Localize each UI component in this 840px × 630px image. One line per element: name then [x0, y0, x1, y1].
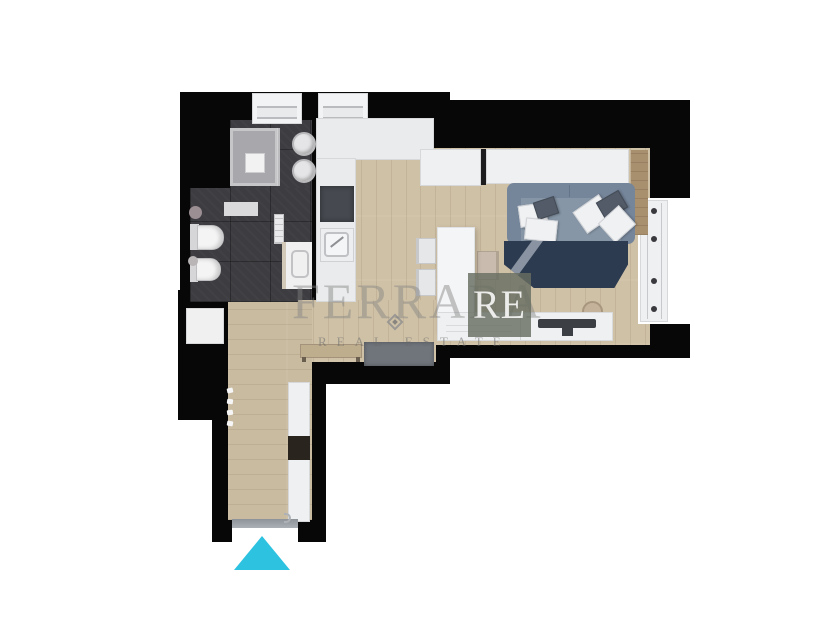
- shower-drain-plate: [245, 153, 265, 173]
- coat-hook: [227, 399, 234, 405]
- washbasin-round: [292, 132, 316, 156]
- towel-radiator: [274, 214, 284, 244]
- coat-hook: [227, 421, 234, 427]
- window-handle-dot: [651, 306, 657, 312]
- sink-basin: [324, 232, 349, 257]
- shower-glass-panel: [277, 128, 280, 186]
- entry-bench-leg: [356, 357, 360, 362]
- bath-mat: [224, 202, 258, 216]
- sofa-pillow: [524, 217, 558, 242]
- tv-stand-mount: [562, 328, 573, 336]
- sofa-back-seam: [569, 185, 570, 197]
- kitchen-counter-top: [316, 118, 434, 160]
- bathroom-accessory: [189, 206, 202, 219]
- window-glazing: [257, 106, 297, 119]
- bathroom-accessory: [188, 256, 198, 266]
- watermark-brand-badge: RE: [468, 273, 531, 337]
- hall-wardrobe-recess: [288, 436, 310, 460]
- wardrobe-unit-left: [420, 149, 481, 186]
- window-north-bathroom: [252, 93, 302, 124]
- window-handle-dot: [651, 278, 657, 284]
- cooktop: [320, 186, 354, 222]
- sofa: [507, 183, 635, 244]
- entry-bench-leg: [302, 357, 306, 362]
- coat-hook: [227, 410, 234, 416]
- hallway-niche: [186, 308, 224, 344]
- entrance-arrow: [234, 536, 290, 570]
- tv-screen: [538, 319, 596, 328]
- kitchen-sink: [320, 228, 354, 262]
- window-handle-dot: [651, 208, 657, 214]
- bidet-bowl: [196, 258, 221, 281]
- window-frame-line: [661, 203, 662, 319]
- dining-chair-white: [416, 238, 436, 264]
- washbasin-round: [292, 159, 316, 183]
- floor-plan: FERRARA RE REAL ESTATE: [0, 0, 840, 630]
- wardrobe-unit-right: [486, 149, 629, 184]
- window-handle-dot: [651, 236, 657, 242]
- toilet-bowl: [197, 225, 224, 250]
- shower-tray: [230, 128, 278, 186]
